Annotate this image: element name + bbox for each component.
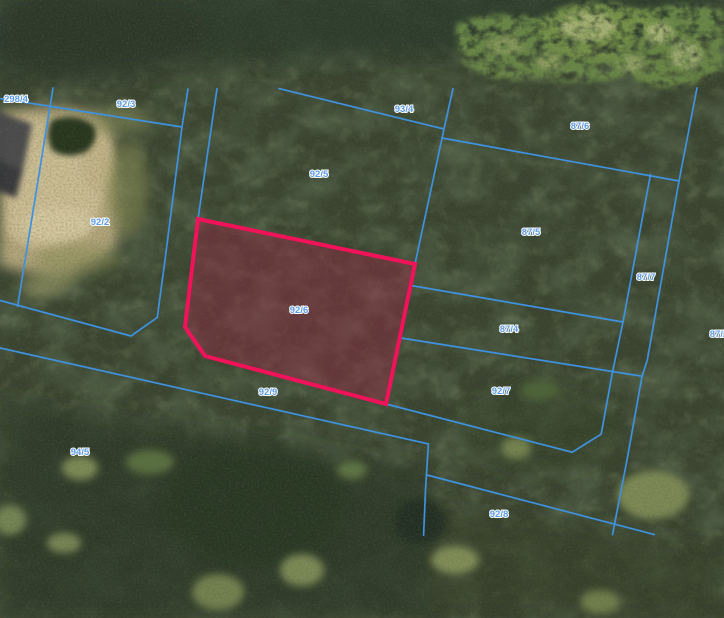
svg-text:92/2: 92/2 [91, 217, 110, 228]
svg-text:87/2: 87/2 [710, 329, 724, 340]
svg-text:92/5: 92/5 [310, 169, 329, 180]
svg-text:92/6: 92/6 [290, 305, 309, 316]
svg-text:92/3: 92/3 [117, 99, 136, 110]
svg-text:92/9: 92/9 [259, 387, 278, 398]
svg-text:87/4: 87/4 [500, 324, 519, 335]
svg-text:94/5: 94/5 [71, 447, 90, 458]
svg-text:87/6: 87/6 [571, 121, 590, 132]
svg-text:87/5: 87/5 [522, 227, 541, 238]
svg-text:92/7: 92/7 [492, 386, 511, 397]
svg-text:93/4: 93/4 [395, 104, 414, 115]
svg-text:92/8: 92/8 [490, 509, 509, 520]
svg-text:87/7: 87/7 [637, 272, 656, 283]
svg-text:298/4: 298/4 [4, 94, 28, 105]
